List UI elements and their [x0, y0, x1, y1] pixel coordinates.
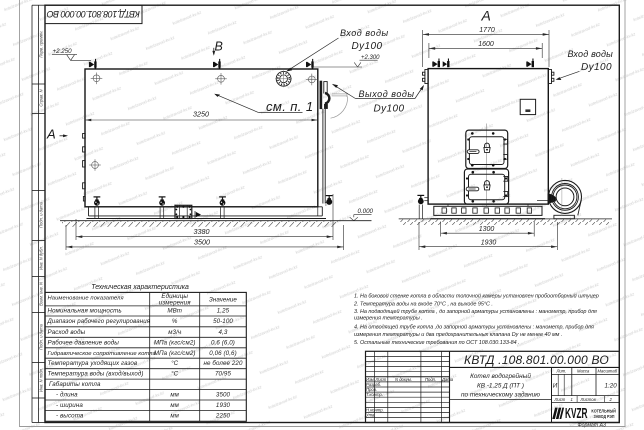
svg-text:+2.300: +2.300 [361, 55, 380, 61]
svg-text:1770: 1770 [479, 27, 495, 34]
svg-text:Вход воды: Вход воды [568, 49, 614, 59]
svg-text:измерения температуры .: измерения температуры . [354, 316, 423, 322]
svg-text:А: А [46, 126, 56, 141]
svg-text:Подп.: Подп. [425, 377, 436, 382]
svg-text:Наименование показателя: Наименование показателя [48, 296, 124, 302]
svg-text:Подп. и дата: Подп. и дата [39, 201, 44, 227]
svg-text:2. Температура воды на входе: 2. Температура воды на входе 70°С , на в… [353, 302, 493, 308]
svg-text:3500: 3500 [216, 392, 231, 399]
svg-text:5. Остальные технические треб: 5. Остальные технические требования по О… [354, 340, 520, 346]
svg-text:1930: 1930 [216, 402, 231, 409]
svg-text:0,6 (6,0): 0,6 (6,0) [211, 339, 235, 346]
svg-text:Масштаб: Масштаб [598, 369, 618, 374]
svg-text:мм: мм [170, 413, 179, 420]
svg-text:1: 1 [571, 397, 573, 402]
svg-text:1300: 1300 [479, 226, 495, 233]
svg-text:Лист: Лист [554, 397, 566, 402]
svg-text:Справ. N: Справ. N [39, 89, 44, 106]
svg-text:- ширина: - ширина [56, 402, 83, 409]
svg-text:Температура воды (вход/выход): Температура воды (вход/выход) [48, 371, 144, 378]
svg-text:В: В [215, 40, 223, 54]
svg-text:N докум.: N докум. [395, 377, 412, 382]
svg-text:Вход воды: Вход воды [340, 28, 389, 38]
svg-text:Рабочее давление воды: Рабочее давление воды [48, 339, 120, 346]
svg-text:не более 220: не более 220 [204, 360, 243, 367]
svg-text:Расход воды: Расход воды [48, 329, 86, 336]
svg-text:1,25: 1,25 [217, 308, 230, 315]
svg-text:3250: 3250 [193, 110, 209, 119]
svg-text:°С: °С [171, 360, 179, 367]
svg-text:ЗАВОД РЭП: ЗАВОД РЭП [594, 414, 615, 419]
svg-text:Утв.: Утв. [366, 413, 376, 418]
svg-text:Перв. примен.: Перв. примен. [39, 30, 44, 57]
svg-text:Габариты котла: Габариты котла [49, 381, 101, 388]
svg-text:КВ -1,25 Д (ПТ ): КВ -1,25 Д (ПТ ) [477, 383, 524, 390]
svg-text:+2.250: +2.250 [53, 48, 73, 55]
svg-text:3500: 3500 [194, 237, 210, 246]
svg-text:Температура уходящих газов: Температура уходящих газов [48, 360, 138, 367]
svg-text:70/95: 70/95 [215, 371, 231, 378]
svg-text:4,3: 4,3 [219, 329, 228, 336]
svg-text:Инв. N дубл.: Инв. N дубл. [39, 246, 44, 270]
svg-text:Подп. и дата: Подп. и дата [39, 323, 44, 349]
svg-text:Номинальная мощность: Номинальная мощность [48, 308, 122, 315]
svg-text:мм: мм [170, 392, 179, 399]
svg-text:0,06 (0,6): 0,06 (0,6) [209, 350, 236, 357]
svg-text:Масса: Масса [577, 369, 590, 374]
svg-text:КВТД .108.801.00.000 ВО: КВТД .108.801.00.000 ВО [464, 353, 609, 367]
svg-text:Dy100: Dy100 [581, 62, 612, 73]
svg-text:измерения температуры и два п: измерения температуры и два предохраните… [354, 332, 562, 338]
svg-text:Диапазон рабочего регулировани: Диапазон рабочего регулирования [47, 318, 151, 325]
svg-text:Т.контр.: Т.контр. [366, 392, 383, 397]
svg-text:измерения: измерения [159, 299, 191, 306]
svg-text:0.000: 0.000 [358, 208, 374, 215]
svg-text:°С: °С [171, 371, 179, 378]
svg-text:3380: 3380 [194, 227, 210, 236]
svg-text:- высота: - высота [56, 413, 84, 420]
svg-text:МПа (кгс/см2): МПа (кгс/см2) [154, 339, 196, 346]
svg-text:%: % [172, 318, 178, 325]
svg-text:- длина: - длина [56, 392, 78, 399]
svg-text:А: А [481, 8, 491, 24]
svg-text:И: И [553, 382, 558, 389]
svg-text:КВТД.108.801.00.000 ВО: КВТД.108.801.00.000 ВО [47, 9, 140, 19]
svg-text:м3/ч: м3/ч [168, 329, 182, 336]
svg-text:Лит.: Лит. [556, 369, 567, 374]
svg-text:KVZR: KVZR [565, 405, 588, 422]
svg-text:50-100: 50-100 [213, 318, 233, 325]
svg-text:Dy100: Dy100 [352, 41, 383, 52]
svg-text:Техническая характеристика: Техническая характеристика [91, 284, 189, 291]
svg-text:см. п. 1: см. п. 1 [266, 99, 313, 114]
svg-text:Котел водогрейный: Котел водогрейный [470, 372, 531, 380]
svg-text:2250: 2250 [215, 413, 231, 420]
svg-text:3. На подводящей трубе котла: 3. На подводящей трубе котла , до запорн… [354, 308, 597, 315]
svg-text:4. На отводящей трубе котла ,: 4. На отводящей трубе котла ,до запорной… [354, 324, 594, 331]
svg-text:Инв. N подл.: Инв. N подл. [39, 368, 44, 392]
svg-text:Выход воды: Выход воды [359, 89, 415, 99]
svg-text:Значение: Значение [209, 297, 237, 304]
svg-text:1600: 1600 [478, 41, 494, 48]
svg-text:Формат А3: Формат А3 [578, 422, 606, 428]
svg-text:Дата: Дата [441, 377, 454, 382]
svg-text:1:20: 1:20 [605, 382, 618, 389]
svg-text:МПа (кгс/см2): МПа (кгс/см2) [154, 350, 196, 357]
svg-text:Гидравлическое сопротивление к: Гидравлическое сопротивление котла [48, 351, 157, 357]
svg-text:1930: 1930 [481, 239, 497, 246]
svg-text:по техническому заданию: по техническому заданию [461, 391, 540, 399]
svg-text:Dy100: Dy100 [374, 104, 405, 115]
svg-text:МВт: МВт [167, 308, 182, 315]
svg-text:1. На боковой стенке котла в: 1. На боковой стенке котла в области топ… [354, 293, 599, 300]
svg-text:Листов: Листов [580, 397, 597, 402]
svg-text:Взам. инв. N: Взам. инв. N [39, 282, 44, 306]
svg-text:мм: мм [170, 402, 179, 409]
